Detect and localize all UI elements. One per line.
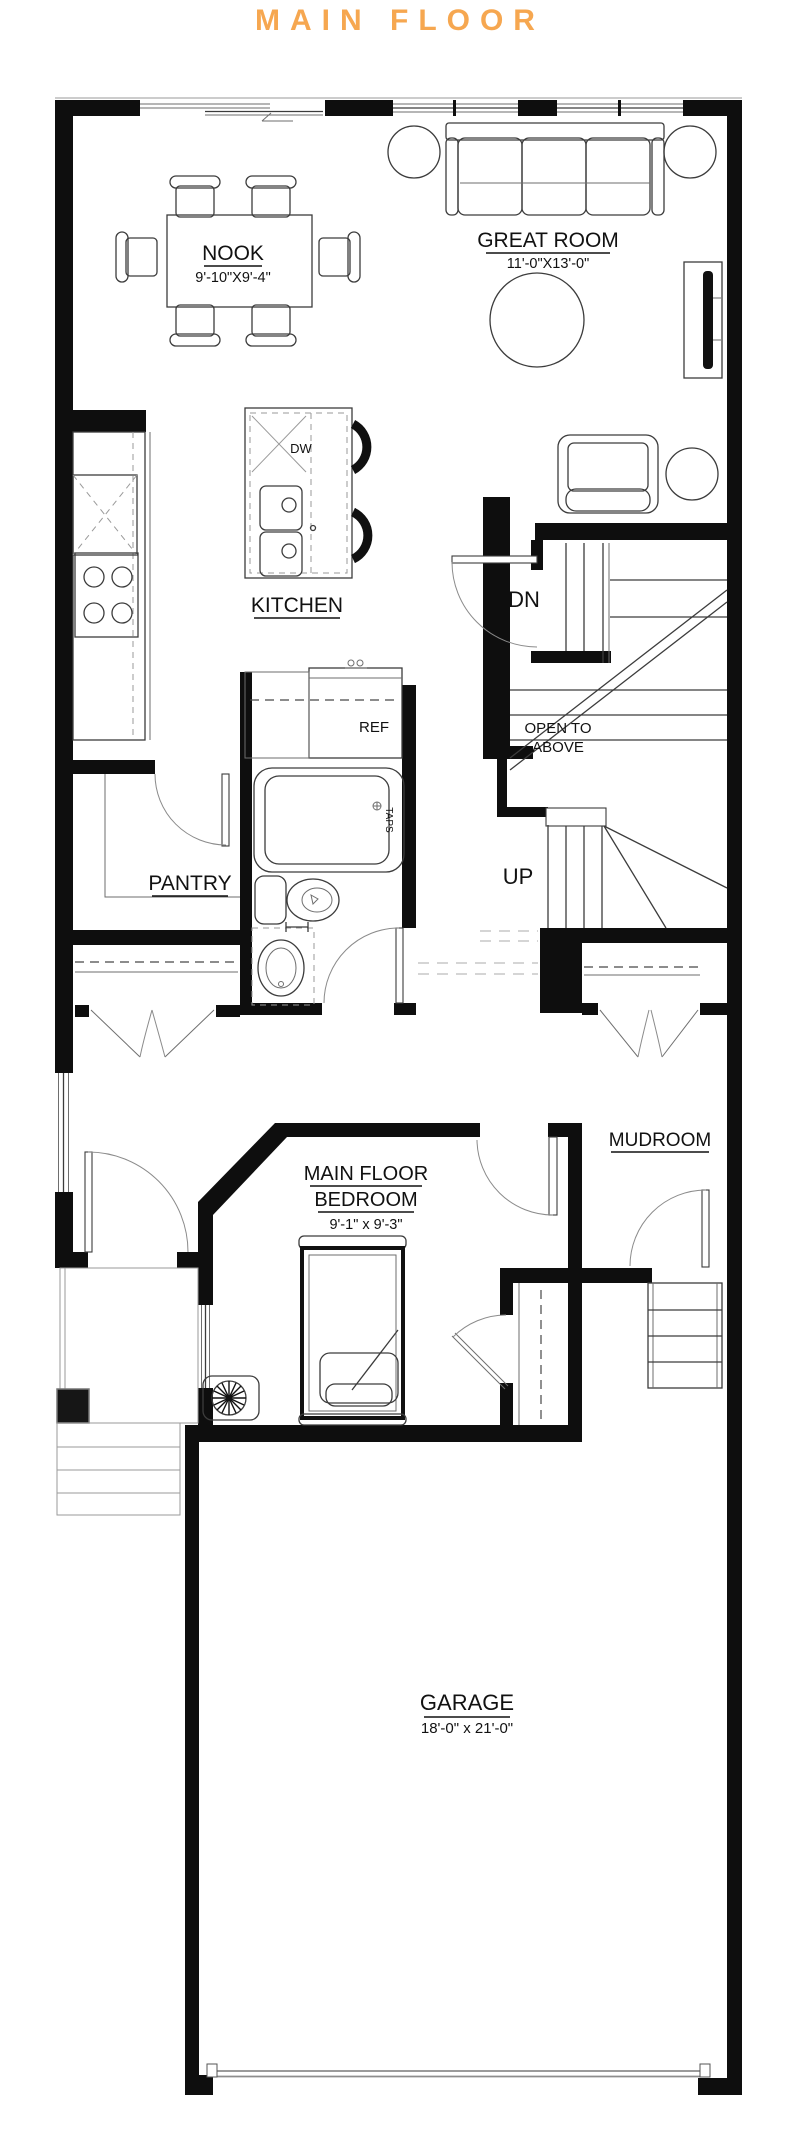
great-room-window-1 — [393, 100, 518, 116]
exterior-walls — [55, 98, 742, 2095]
side-table-left — [388, 126, 440, 178]
front-door — [85, 1152, 92, 1252]
sofa — [446, 123, 664, 215]
armchair-side-table — [666, 448, 718, 500]
side-table-right — [664, 126, 716, 178]
great-room-dims: 11'-0"X13'-0" — [507, 256, 589, 272]
dishwasher-label: DW — [290, 441, 312, 456]
bedroom-furniture — [203, 1236, 406, 1425]
nook-label: NOOK — [202, 242, 264, 265]
floor-plan-page: MAIN FLOOR — [0, 0, 800, 2150]
stairs-up-label: UP — [503, 864, 534, 889]
garage-label: GARAGE — [420, 1690, 514, 1715]
kitchen-label: KITCHEN — [251, 594, 343, 617]
range — [75, 553, 138, 637]
open-to-above-line1: OPEN TO — [525, 720, 592, 737]
vanity-sink — [252, 922, 314, 1005]
mudroom-garage-door — [702, 1190, 709, 1267]
toilet — [255, 876, 339, 924]
basement-door — [452, 556, 537, 563]
room-labels: NOOK 9'-10"X9'-4" GREAT ROOM 11'-0"X13'-… — [148, 229, 711, 1737]
corner-cabinet — [73, 475, 137, 555]
bedroom-closet — [452, 1283, 541, 1425]
great-room-label: GREAT ROOM — [477, 229, 619, 252]
refrigerator — [309, 660, 402, 758]
east-party-wall — [727, 116, 742, 2095]
garage-entry-steps — [648, 1283, 722, 1388]
garage-dims: 18'-0" x 21'-0" — [421, 1720, 513, 1737]
pantry-label: PANTRY — [148, 872, 231, 895]
foyer-closet — [75, 962, 238, 1057]
bathtub — [254, 768, 404, 872]
pantry-door — [222, 774, 229, 846]
kitchen-sink — [260, 486, 316, 576]
bedroom-label-line2: BEDROOM — [314, 1189, 417, 1211]
refrigerator-label: REF — [359, 719, 389, 736]
counter-by-fridge — [245, 672, 398, 758]
bed — [299, 1236, 406, 1425]
west-party-wall — [55, 100, 73, 1073]
kitchen-casework — [73, 408, 402, 758]
bathroom-door — [396, 928, 403, 1003]
bedroom-label-line1: MAIN FLOOR — [304, 1163, 428, 1185]
patio-door-window — [140, 100, 325, 121]
ceiling-break-lines — [418, 931, 538, 974]
porch-steps — [57, 1423, 180, 1515]
stairwell — [418, 543, 727, 974]
island-stools — [353, 424, 368, 559]
mudroom-label: MUDROOM — [609, 1130, 711, 1151]
great-room-window-2 — [557, 100, 683, 116]
front-porch — [57, 1268, 198, 1515]
floor-plan-drawing: NOOK 9'-10"X9'-4" GREAT ROOM 11'-0"X13'-… — [0, 0, 800, 2150]
open-to-above-line2: ABOVE — [532, 739, 584, 756]
island — [245, 408, 352, 578]
foyer-window — [55, 1073, 73, 1192]
garage-door — [207, 2064, 710, 2077]
bedroom-dims: 9'-1" x 9'-3" — [329, 1217, 402, 1233]
great-room-furniture — [388, 123, 722, 513]
nook-dims: 9'-10"X9'-4" — [195, 270, 270, 286]
bedroom-door — [549, 1137, 557, 1215]
stairs-down-label: DN — [508, 587, 540, 612]
tub-taps-label: TAPS — [383, 807, 394, 833]
mudroom-closet — [584, 967, 700, 1057]
tv-unit — [684, 262, 722, 378]
round-ottoman — [490, 273, 584, 367]
porch-column — [57, 1389, 89, 1423]
bathroom — [252, 768, 404, 1005]
armchair — [558, 435, 658, 513]
